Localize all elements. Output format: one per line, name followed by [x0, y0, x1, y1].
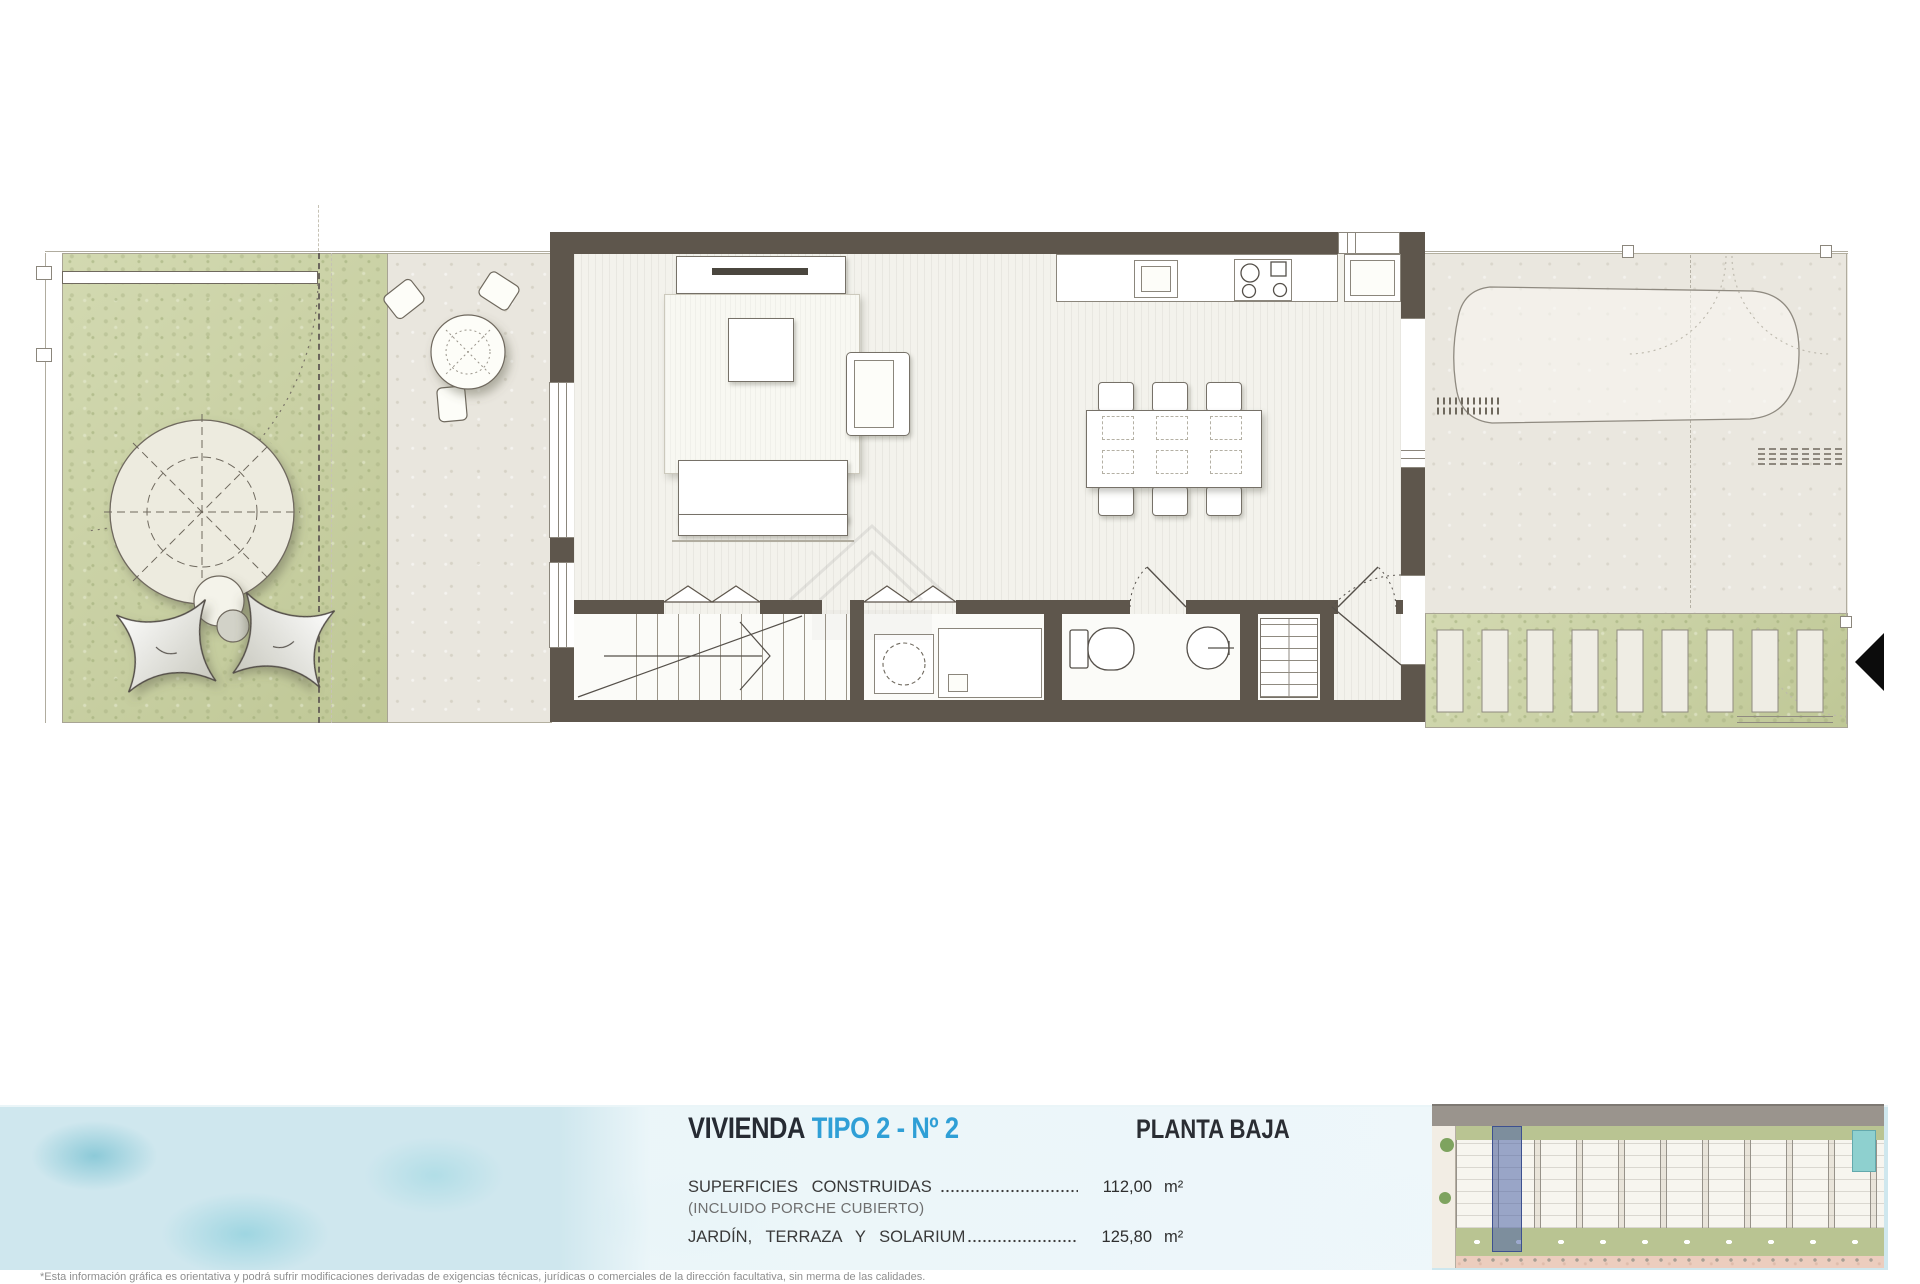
- site-pool: [1852, 1130, 1876, 1172]
- site-tree: [1440, 1138, 1454, 1152]
- area-label: SUPERFICIES CONSTRUIDAS: [688, 1178, 932, 1197]
- site-plan-key: [1432, 1104, 1884, 1268]
- dot-leader: [967, 1239, 1078, 1243]
- site-dot-row: [1458, 1256, 1878, 1264]
- car-outline: [1454, 287, 1799, 423]
- site-road: [1432, 1104, 1884, 1126]
- terrace-table-set: [382, 270, 521, 422]
- dot-leader: [940, 1189, 1078, 1193]
- area-row-built: SUPERFICIES CONSTRUIDAS 112,00 m²: [688, 1178, 1200, 1197]
- site-highlighted-unit: [1492, 1126, 1522, 1252]
- floor-plan: [0, 0, 1920, 1280]
- disclaimer-text: *Esta información gráfica es orientativa…: [40, 1271, 1840, 1284]
- title-unit: TIPO 2 - Nº 2: [812, 1112, 959, 1145]
- washer-drum: [883, 643, 925, 685]
- area-note: (INCLUIDO PORCHE CUBIERTO): [688, 1200, 924, 1217]
- site-tree: [1439, 1192, 1451, 1204]
- garden-parasol-icon: [104, 414, 300, 610]
- lounge-chair: [233, 592, 336, 688]
- plan-sheet: { "document": { "type": "architectural-f…: [0, 0, 1920, 1280]
- area-label: JARDÍN, TERRAZA Y SOLARIUM: [688, 1228, 965, 1247]
- entrance-arrow-icon: [1855, 633, 1884, 691]
- area-unit: m²: [1164, 1228, 1200, 1247]
- area-value: 112,00: [1086, 1178, 1152, 1197]
- floor-label: PLANTA BAJA: [1136, 1114, 1290, 1145]
- toilet-icon: [1070, 628, 1134, 670]
- stepping-stones: [1437, 630, 1823, 712]
- cooktop-burners: [1241, 262, 1287, 298]
- builder-watermark: [790, 526, 952, 640]
- area-value: 125,80: [1086, 1228, 1152, 1247]
- washbasin-icon: [1187, 627, 1234, 669]
- area-unit: m²: [1164, 1178, 1200, 1197]
- lounge-chair: [116, 599, 216, 692]
- door-swing: [1130, 567, 1401, 665]
- plan-vector-overlay: [0, 0, 1920, 1280]
- area-row-garden: JARDÍN, TERRAZA Y SOLARIUM 125,80 m²: [688, 1228, 1200, 1247]
- sheet-title: VIVIENDA TIPO 2 - Nº 2: [688, 1112, 959, 1146]
- garden-stool: [217, 610, 249, 642]
- stairs-symbols: [578, 616, 802, 697]
- folding-door-icon: [664, 586, 956, 602]
- title-project: VIVIENDA: [688, 1112, 805, 1145]
